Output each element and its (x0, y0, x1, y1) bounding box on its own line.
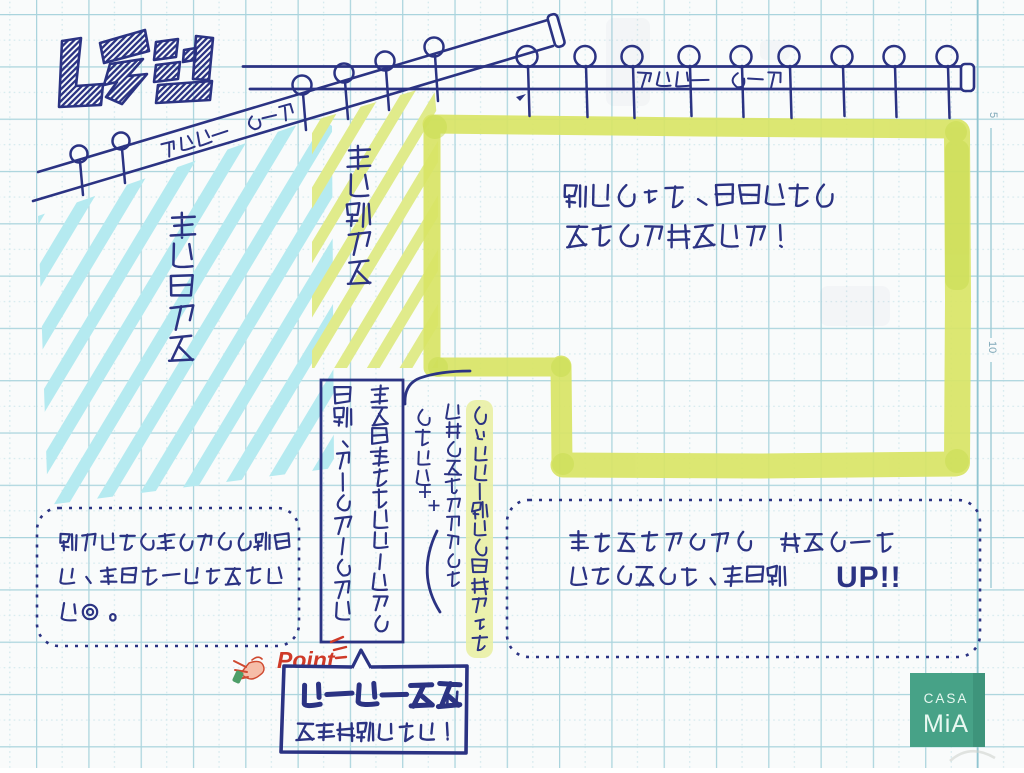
svg-text:UP!!: UP!! (836, 561, 902, 594)
svg-text:CASA: CASA (924, 691, 969, 706)
svg-text:10: 10 (986, 341, 998, 353)
svg-text:MiA: MiA (923, 710, 969, 738)
svg-text:Point: Point (277, 647, 336, 673)
svg-text:5: 5 (987, 112, 999, 118)
